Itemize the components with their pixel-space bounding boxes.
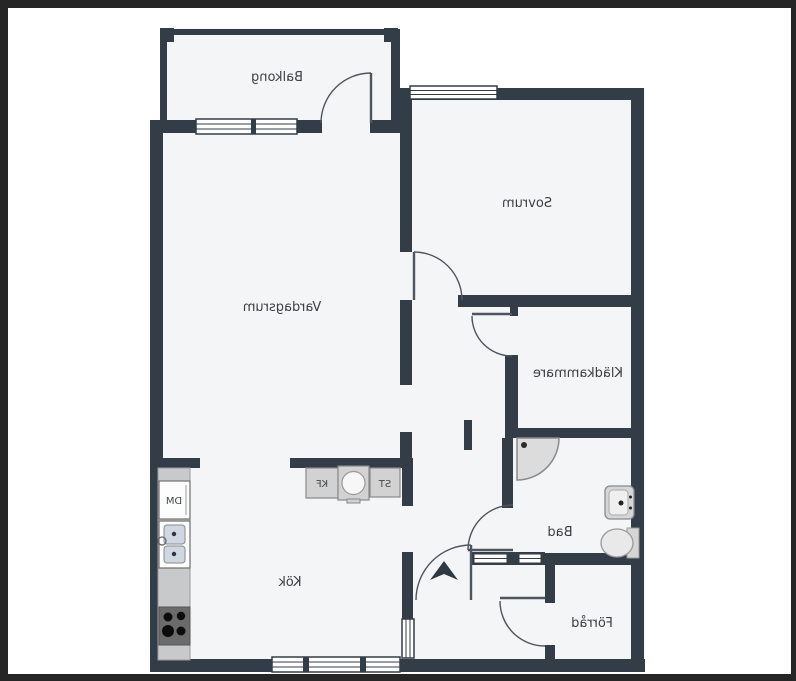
bath-left-wall — [502, 438, 513, 508]
balcony-rail-right — [391, 29, 400, 123]
toilet — [601, 528, 639, 558]
outer-wall-right — [631, 88, 644, 672]
storage-left-wall-a — [545, 565, 555, 603]
frame-left — [0, 0, 8, 681]
kitchen-hall-window — [402, 619, 414, 658]
bath-sink — [605, 486, 634, 519]
kitchen-hall-wall-b — [402, 552, 413, 620]
fridge-freezer-label: KF — [316, 479, 329, 490]
living-label: Vardagsrum — [243, 300, 321, 315]
bedroom-window — [410, 86, 497, 99]
frame-bottom — [0, 674, 796, 681]
dishwasher-label: DM — [166, 496, 182, 507]
storage-label: Förråd — [571, 616, 613, 631]
frame-top — [0, 0, 796, 8]
shower-drain-icon — [521, 442, 527, 448]
living-hall-wall-a — [400, 300, 412, 385]
hall-wall-stub — [464, 420, 472, 450]
frame-right — [791, 0, 796, 681]
closet-label: Klädkammare — [533, 366, 623, 381]
living-window — [196, 119, 297, 134]
floorplan-canvas: Balkong Sovrum Vardagsrum Klädkammare Ba… — [0, 0, 796, 681]
bath-label: Bad — [547, 525, 572, 540]
entry-sidelight-right — [519, 554, 541, 563]
balcony-label: Balkong — [251, 70, 303, 85]
closet-left-wall — [505, 355, 518, 430]
cleaning-cabinet-label: ST — [378, 479, 391, 490]
washing-machine — [338, 466, 369, 503]
balcony-rail-left — [160, 29, 167, 123]
floorplan-svg: Balkong Sovrum Vardagsrum Klädkammare Ba… — [0, 0, 796, 681]
living-top-wall-b — [297, 120, 322, 133]
bedroom-bottom-wall — [458, 295, 644, 307]
bath-top-wall — [505, 428, 644, 438]
kitchen-label: Kök — [278, 575, 302, 590]
kitchen-hall-wall-a — [402, 458, 413, 506]
living-bedroom-wall — [400, 100, 412, 252]
bedroom-label: Sovrum — [502, 196, 552, 211]
kitchen-top-wall-a — [150, 458, 200, 468]
entry-sidelight-left — [474, 554, 507, 563]
kitchen-sink — [158, 521, 190, 568]
stove — [159, 607, 190, 645]
storage-left-wall-b — [545, 645, 555, 661]
balcony-rail-top — [160, 29, 398, 35]
living-hall-wall-b — [400, 432, 412, 458]
washing-machine-drum-icon — [342, 472, 365, 495]
kitchen-bottom-window — [272, 657, 400, 672]
